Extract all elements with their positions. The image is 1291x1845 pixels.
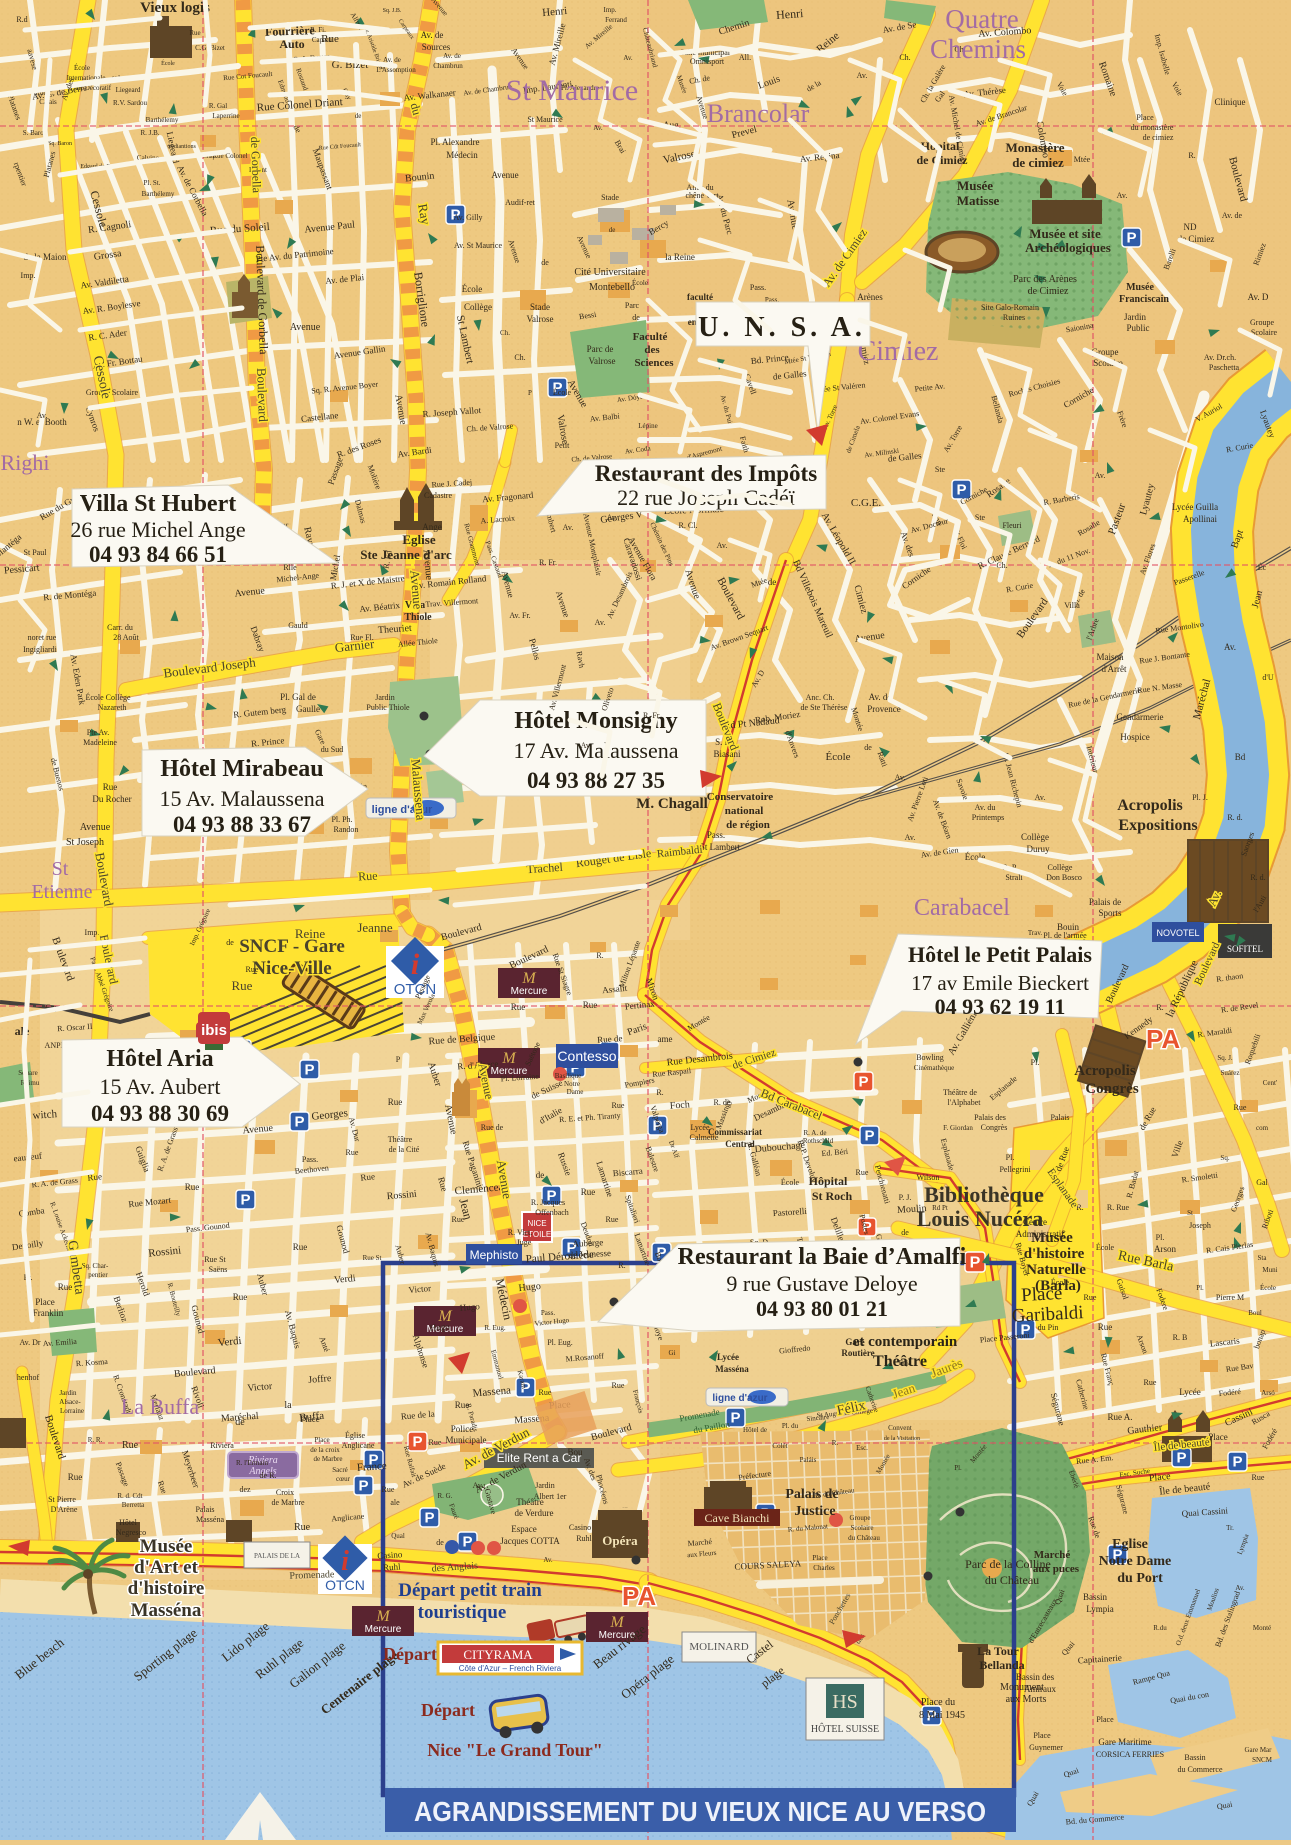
svg-text:Hôtel le Petit Palais: Hôtel le Petit Palais xyxy=(908,942,1092,967)
svg-text:Hôtel Aria: Hôtel Aria xyxy=(106,1046,213,1072)
svg-text:École: École xyxy=(825,751,850,763)
svg-text:Archéologiques: Archéologiques xyxy=(1025,240,1111,255)
svg-text:Cent': Cent' xyxy=(1263,1079,1277,1087)
svg-text:Anc. Ch.: Anc. Ch. xyxy=(806,693,835,702)
svg-text:Pass.: Pass. xyxy=(541,1309,555,1317)
svg-text:Amiraux: Amiraux xyxy=(1024,1684,1056,1694)
svg-text:P: P xyxy=(294,1114,304,1131)
svg-text:Valrose: Valrose xyxy=(589,356,616,366)
svg-text:Pte Av.: Pte Av. xyxy=(87,728,109,737)
svg-text:du Château: du Château xyxy=(848,1534,880,1542)
svg-text:Pl. J.: Pl. J. xyxy=(1192,793,1208,802)
svg-text:MOLINARD: MOLINARD xyxy=(689,1641,748,1653)
svg-text:École: École xyxy=(553,387,572,397)
svg-text:Rue: Rue xyxy=(429,1438,442,1447)
svg-text:Liegeard: Liegeard xyxy=(116,86,141,94)
svg-text:d'histoire: d'histoire xyxy=(128,1578,205,1599)
svg-text:Petit: Petit xyxy=(555,441,570,450)
svg-text:Jacques COTTA: Jacques COTTA xyxy=(500,1536,560,1546)
svg-text:touristique: touristique xyxy=(418,1602,507,1623)
svg-text:de: de xyxy=(768,577,777,587)
svg-text:NOVOTEL: NOVOTEL xyxy=(1156,928,1199,938)
svg-text:Rue A.: Rue A. xyxy=(1107,1412,1132,1422)
svg-text:École: École xyxy=(161,59,175,67)
svg-text:ame: ame xyxy=(658,1034,673,1044)
svg-text:R. Fr.: R. Fr. xyxy=(643,711,661,720)
svg-text:Nice-Ville: Nice-Ville xyxy=(252,958,331,979)
svg-text:Palais des: Palais des xyxy=(974,1113,1006,1122)
svg-text:Esc.: Esc. xyxy=(856,1444,868,1452)
svg-text:Louis Nucéra: Louis Nucéra xyxy=(917,1206,1044,1231)
svg-text:Expositions: Expositions xyxy=(1118,817,1197,834)
svg-text:Cave Bianchi: Cave Bianchi xyxy=(705,1511,771,1525)
svg-text:Verdi: Verdi xyxy=(217,1335,242,1349)
svg-text:Rue: Rue xyxy=(293,1242,308,1252)
svg-text:Pl. Gal de: Pl. Gal de xyxy=(280,692,316,702)
svg-text:15 Av. Malaussena: 15 Av. Malaussena xyxy=(160,786,325,811)
svg-text:Lympia: Lympia xyxy=(1086,1604,1114,1614)
svg-text:Jardin: Jardin xyxy=(535,1481,555,1490)
svg-text:cœur: cœur xyxy=(336,1475,351,1483)
svg-text:Pl. du: Pl. du xyxy=(782,1422,799,1430)
svg-text:HS: HS xyxy=(832,1691,858,1713)
svg-text:R. J.B.: R. J.B. xyxy=(140,129,159,137)
svg-text:Muni: Muni xyxy=(1262,1266,1277,1274)
svg-text:SOFITEL: SOFITEL xyxy=(1227,944,1263,954)
svg-text:R. Cl.: R. Cl. xyxy=(679,521,698,530)
svg-text:Carabacel: Carabacel xyxy=(914,895,1010,921)
svg-text:du Port: du Port xyxy=(1117,1571,1163,1586)
svg-text:Sources: Sources xyxy=(422,42,451,52)
svg-text:Cinémathèque: Cinémathèque xyxy=(914,1064,954,1072)
svg-text:St Lambert: St Lambert xyxy=(700,842,741,852)
svg-text:CORSICA FERRIES: CORSICA FERRIES xyxy=(1096,1750,1164,1759)
svg-text:NICE: NICE xyxy=(527,1219,546,1228)
svg-text:Offenbach: Offenbach xyxy=(535,1208,569,1217)
svg-text:Mercure: Mercure xyxy=(511,986,548,997)
svg-text:Faculté: Faculté xyxy=(633,331,668,343)
svg-text:Nice "Le Grand Tour": Nice "Le Grand Tour" xyxy=(427,1740,603,1760)
svg-text:P: P xyxy=(358,1478,368,1495)
svg-text:CITYRAMA: CITYRAMA xyxy=(463,1647,533,1662)
svg-text:U. N. S. A.: U. N. S. A. xyxy=(698,312,866,343)
svg-text:Sports: Sports xyxy=(1098,908,1122,918)
svg-text:R. Vict.: R. Vict. xyxy=(508,1228,532,1237)
svg-text:Rue: Rue xyxy=(189,29,200,37)
svg-text:Place: Place xyxy=(1096,1715,1114,1724)
svg-text:Place: Place xyxy=(812,1554,827,1562)
svg-text:Boul: Boul xyxy=(1248,1309,1262,1317)
svg-text:Rue: Rue xyxy=(581,1187,596,1197)
svg-text:Guynemer: Guynemer xyxy=(1029,1743,1063,1752)
svg-text:Collège: Collège xyxy=(1021,832,1049,842)
svg-text:Notre: Notre xyxy=(564,1080,580,1088)
svg-text:28 Août: 28 Août xyxy=(113,633,139,642)
svg-text:Av. de: Av. de xyxy=(1222,211,1243,220)
svg-text:M: M xyxy=(375,1608,391,1625)
svg-text:Lépine: Lépine xyxy=(638,422,657,430)
svg-text:Ruines: Ruines xyxy=(1003,313,1025,322)
svg-text:École: École xyxy=(632,279,648,287)
svg-text:Départ: Départ xyxy=(421,1700,475,1720)
svg-text:R.d: R.d xyxy=(16,15,27,24)
svg-text:04 93 88 30 69: 04 93 88 30 69 xyxy=(91,1101,229,1126)
svg-text:Etienne: Etienne xyxy=(31,881,92,903)
svg-text:R. Eug.: R. Eug. xyxy=(484,1324,505,1332)
svg-text:Justice: Justice xyxy=(794,1504,835,1519)
svg-text:P: P xyxy=(730,1410,740,1427)
svg-text:École: École xyxy=(781,1177,800,1187)
svg-text:Colét: Colét xyxy=(772,1442,787,1450)
svg-text:Théâtre de: Théâtre de xyxy=(943,1088,977,1097)
svg-text:Opéra: Opéra xyxy=(602,1533,638,1548)
svg-text:Suárez: Suárez xyxy=(1220,1069,1239,1077)
svg-text:Lorraine: Lorraine xyxy=(60,1407,84,1415)
svg-text:Av.: Av. xyxy=(895,773,906,782)
svg-text:ale: ale xyxy=(390,1498,400,1507)
svg-text:Site Galo-Romain: Site Galo-Romain xyxy=(981,303,1039,312)
svg-text:Av.: Av. xyxy=(857,71,868,80)
svg-text:Franciscain: Franciscain xyxy=(1119,294,1169,305)
svg-text:de Verdure: de Verdure xyxy=(514,1508,553,1518)
svg-text:Place: Place xyxy=(1148,1471,1171,1484)
svg-text:St: St xyxy=(52,858,69,880)
svg-text:Printemps: Printemps xyxy=(972,813,1004,822)
svg-text:Rue: Rue xyxy=(233,1292,248,1302)
svg-text:Henri: Henri xyxy=(776,6,805,22)
svg-text:Capatti: Capatti xyxy=(312,36,332,44)
svg-text:SNCM: SNCM xyxy=(1252,1756,1273,1764)
svg-text:Duruy: Duruy xyxy=(1027,844,1050,854)
svg-text:P. J.: P. J. xyxy=(899,1193,912,1202)
svg-text:Casino: Casino xyxy=(377,1549,403,1561)
svg-text:R. B: R. B xyxy=(1173,1333,1188,1342)
svg-text:Musée: Musée xyxy=(140,1536,193,1557)
svg-text:witch: witch xyxy=(32,1108,58,1122)
svg-text:du Château: du Château xyxy=(985,1573,1039,1587)
svg-text:Stade: Stade xyxy=(530,302,550,312)
svg-text:Du Rocher: Du Rocher xyxy=(92,794,131,804)
svg-text:Public: Public xyxy=(1126,323,1149,333)
svg-text:Rue: Rue xyxy=(511,1002,526,1012)
svg-text:d'Arrêt: d'Arrêt xyxy=(1101,664,1127,674)
svg-text:com: com xyxy=(1256,1124,1269,1132)
svg-text:de: de xyxy=(541,258,549,267)
svg-text:17 Av. Malaussena: 17 Av. Malaussena xyxy=(514,738,679,763)
svg-text:Victor: Victor xyxy=(408,1283,431,1295)
svg-text:Rue de: Rue de xyxy=(481,1123,504,1132)
svg-text:M: M xyxy=(501,1050,517,1067)
svg-text:Rue: Rue xyxy=(612,1101,625,1110)
svg-text:R. l'Ermain: R. l'Ermain xyxy=(236,1459,268,1467)
svg-text:Don Bosco: Don Bosco xyxy=(1046,873,1082,882)
svg-text:Notre Dame: Notre Dame xyxy=(1099,1554,1171,1569)
svg-text:Hospice: Hospice xyxy=(1120,732,1150,742)
svg-text:Gare Mar: Gare Mar xyxy=(1244,1746,1272,1754)
svg-text:Pellegrini: Pellegrini xyxy=(999,1165,1031,1174)
svg-text:du Sud: du Sud xyxy=(321,745,343,754)
svg-text:Jardin: Jardin xyxy=(375,693,395,702)
svg-text:du Pin: du Pin xyxy=(1038,1323,1059,1332)
svg-text:PA: PA xyxy=(622,1581,656,1611)
svg-text:faculté: faculté xyxy=(687,292,713,302)
svg-text:Place: Place xyxy=(1136,113,1154,122)
svg-text:Pl. Ph.: Pl. Ph. xyxy=(331,815,352,824)
svg-text:Stade: Stade xyxy=(601,193,619,202)
svg-text:ibis: ibis xyxy=(201,1022,227,1039)
svg-text:Masséna: Masséna xyxy=(715,1364,749,1374)
svg-text:Rue: Rue xyxy=(68,1472,83,1482)
svg-text:Ste: Ste xyxy=(935,465,946,474)
svg-text:École: École xyxy=(1096,1242,1115,1252)
svg-text:Mtée: Mtée xyxy=(1074,155,1091,164)
svg-text:Place du: Place du xyxy=(921,1697,955,1708)
svg-text:PALAIS DE LA: PALAIS DE LA xyxy=(254,1552,300,1560)
svg-text:Pl. Eug.: Pl. Eug. xyxy=(547,1338,573,1347)
svg-text:Verdi: Verdi xyxy=(334,1273,357,1286)
svg-text:Av.: Av. xyxy=(905,833,916,842)
svg-text:R. d.: R. d. xyxy=(1227,813,1242,822)
svg-text:France: France xyxy=(356,1460,387,1474)
svg-text:La Tour: La Tour xyxy=(977,1644,1019,1658)
svg-text:Valrose: Valrose xyxy=(527,314,554,324)
svg-text:Ange: Ange xyxy=(422,522,442,532)
svg-text:Quatre: Quatre xyxy=(945,4,1018,34)
svg-text:Chemins: Chemins xyxy=(930,34,1026,64)
svg-text:de la Cité: de la Cité xyxy=(389,1145,420,1154)
svg-text:Pierre M: Pierre M xyxy=(1216,1293,1244,1302)
svg-text:Pl.: Pl. xyxy=(1156,1233,1165,1242)
svg-text:Avenue: Avenue xyxy=(491,170,518,180)
svg-text:R.: R. xyxy=(1188,151,1195,160)
svg-text:Cave Bianchi: Cave Bianchi xyxy=(622,1507,628,1509)
svg-text:D'Arène: D'Arène xyxy=(51,1505,78,1514)
svg-text:Righi: Righi xyxy=(1,450,50,475)
svg-text:Eglise: Eglise xyxy=(1112,1537,1148,1552)
svg-text:R.: R. xyxy=(618,1261,625,1270)
svg-text:Acropolis: Acropolis xyxy=(1074,1063,1136,1079)
svg-text:Municipale: Municipale xyxy=(446,1435,487,1445)
svg-text:HÔTEL SUISSE: HÔTEL SUISSE xyxy=(811,1723,879,1735)
svg-text:Auto: Auto xyxy=(279,37,304,51)
svg-text:Joffre: Joffre xyxy=(308,1373,333,1386)
svg-text:Croix: Croix xyxy=(276,1488,294,1497)
svg-text:Lycée: Lycée xyxy=(717,1352,739,1362)
svg-text:Pl. Alexandre: Pl. Alexandre xyxy=(431,137,480,147)
svg-text:de: de xyxy=(436,1538,444,1547)
svg-text:Rue: Rue xyxy=(358,869,378,884)
svg-text:Chambrun: Chambrun xyxy=(433,62,463,70)
svg-text:École: École xyxy=(1260,1284,1276,1292)
svg-text:Qual: Qual xyxy=(391,1532,405,1540)
svg-text:R.: R. xyxy=(596,951,603,960)
svg-text:Ingigliardi: Ingigliardi xyxy=(23,645,58,654)
svg-text:Sq. Char-: Sq. Char- xyxy=(82,1262,109,1270)
svg-text:Rue: Rue xyxy=(360,1171,375,1182)
svg-text:Rue: Rue xyxy=(232,978,253,993)
svg-text:i: i xyxy=(411,948,420,981)
svg-text:Foch: Foch xyxy=(669,1099,690,1111)
svg-text:Av.: Av. xyxy=(623,54,633,62)
svg-text:École: École xyxy=(74,64,90,72)
svg-text:aux Morts: aux Morts xyxy=(1006,1694,1047,1705)
svg-text:Madeleine: Madeleine xyxy=(83,738,117,747)
svg-text:Hugo: Hugo xyxy=(518,1281,541,1294)
svg-text:dez: dez xyxy=(239,1485,251,1494)
svg-text:de: de xyxy=(536,1170,545,1180)
svg-text:P: P xyxy=(304,1062,314,1079)
svg-text:Masséna: Masséna xyxy=(196,1515,224,1524)
svg-text:Barthélemy: Barthélemy xyxy=(146,116,179,124)
svg-text:Arènes: Arènes xyxy=(857,292,883,302)
svg-text:P: P xyxy=(1176,1450,1186,1467)
svg-text:Randon: Randon xyxy=(334,825,359,834)
svg-text:Av. Dr: Av. Dr xyxy=(19,1338,40,1347)
svg-text:Hôtel de: Hôtel de xyxy=(743,1426,767,1434)
svg-text:Rue: Rue xyxy=(1252,1473,1265,1482)
svg-text:Av. de: Av. de xyxy=(421,30,444,40)
svg-text:Avenue: Avenue xyxy=(80,822,111,833)
svg-text:26 rue Michel Ange: 26 rue Michel Ange xyxy=(70,517,245,542)
svg-text:15 Av. Aubert: 15 Av. Aubert xyxy=(100,1074,221,1099)
svg-text:Rue: Rue xyxy=(122,1440,139,1451)
svg-text:Imp.: Imp. xyxy=(603,6,616,14)
svg-text:Hôtel Mirabeau: Hôtel Mirabeau xyxy=(160,756,323,782)
svg-text:d'U: d'U xyxy=(1262,673,1273,682)
svg-text:Sq.: Sq. xyxy=(1220,1154,1229,1162)
svg-text:R. Rue: R. Rue xyxy=(1107,1203,1130,1212)
svg-text:Wilson: Wilson xyxy=(917,1173,940,1182)
svg-text:national: national xyxy=(725,805,764,817)
svg-text:Av. Gilly: Av. Gilly xyxy=(453,213,482,222)
svg-text:Riviera: Riviera xyxy=(210,1441,234,1450)
svg-text:P: P xyxy=(858,1074,868,1091)
svg-text:St Maurice: St Maurice xyxy=(527,115,563,124)
svg-text:Gauld: Gauld xyxy=(288,621,308,630)
svg-text:P: P xyxy=(864,1128,874,1145)
svg-text:Avenue: Avenue xyxy=(290,322,321,333)
svg-text:Casino: Casino xyxy=(569,1523,591,1532)
svg-text:pentier: pentier xyxy=(88,1271,108,1279)
svg-text:Paláis: Paláis xyxy=(800,1456,817,1464)
svg-text:St Roch: St Roch xyxy=(812,1189,853,1203)
svg-text:Barthélemy: Barthélemy xyxy=(142,190,175,198)
svg-text:Boulevard: Boulevard xyxy=(254,368,271,423)
svg-text:Av.: Av. xyxy=(1117,191,1128,200)
svg-text:Gi: Gi xyxy=(669,1349,676,1357)
svg-text:Sq. Baron: Sq. Baron xyxy=(48,141,72,147)
svg-text:Rue: Rue xyxy=(388,1097,403,1107)
svg-text:R. Jacques: R. Jacques xyxy=(531,1198,565,1207)
svg-text:Convent: Convent xyxy=(888,1424,912,1432)
svg-text:Villa St Hubert: Villa St Hubert xyxy=(80,491,236,517)
svg-text:Rlle: Rlle xyxy=(283,563,297,572)
svg-text:Sq. J.: Sq. J. xyxy=(1217,1054,1233,1062)
svg-text:de Marbre: de Marbre xyxy=(271,1498,305,1507)
svg-text:Gare Maritime: Gare Maritime xyxy=(1098,1737,1151,1747)
svg-text:St Paul: St Paul xyxy=(24,548,48,557)
svg-text:PA: PA xyxy=(1146,1024,1180,1054)
svg-text:Rue: Rue xyxy=(294,1522,311,1533)
svg-text:Rue: Rue xyxy=(185,1182,200,1192)
svg-text:Scolaire: Scolaire xyxy=(851,1524,874,1532)
svg-text:Congrès: Congrès xyxy=(1085,1081,1138,1097)
svg-text:Ste Jeanne d'arc: Ste Jeanne d'arc xyxy=(360,547,452,562)
svg-text:Pl.: Pl. xyxy=(1196,1284,1204,1292)
svg-text:04 93 84 66 51: 04 93 84 66 51 xyxy=(89,542,227,567)
svg-text:de R.: de R. xyxy=(260,1471,277,1480)
svg-text:Promenade: Promenade xyxy=(289,1569,335,1582)
svg-text:St Pierre: St Pierre xyxy=(48,1495,76,1504)
svg-text:Cadastre: Cadastre xyxy=(424,491,452,500)
svg-text:Contesso: Contesso xyxy=(557,1048,616,1064)
svg-text:R.: R. xyxy=(832,1439,839,1447)
svg-text:Juge: Juge xyxy=(517,1238,532,1247)
svg-text:04 93 88 27 35: 04 93 88 27 35 xyxy=(527,768,665,793)
svg-text:de la croix: de la croix xyxy=(310,1446,340,1454)
svg-text:Hôtel: Hôtel xyxy=(119,1518,138,1527)
svg-text:Naturelle: Naturelle xyxy=(1026,1262,1086,1278)
svg-text:de: de xyxy=(355,112,362,120)
svg-text:Éc: Éc xyxy=(1258,562,1267,572)
svg-text:de cimiez: de cimiez xyxy=(1143,133,1174,142)
svg-text:Musée: Musée xyxy=(1126,282,1154,293)
svg-text:Pass.: Pass. xyxy=(750,283,766,292)
svg-text:Montebello: Montebello xyxy=(589,282,635,293)
svg-text:Musée: Musée xyxy=(1031,1230,1073,1246)
svg-text:Église: Église xyxy=(345,1430,365,1440)
svg-text:Av.: Av. xyxy=(595,618,606,627)
svg-text:Eglise: Eglise xyxy=(402,532,435,547)
svg-text:Parc des Arènes: Parc des Arènes xyxy=(1013,274,1077,285)
svg-text:Médecin: Médecin xyxy=(446,150,478,160)
svg-text:Av.: Av. xyxy=(37,411,48,420)
svg-text:Imp.: Imp. xyxy=(21,271,36,280)
svg-text:Av.: Av. xyxy=(1095,471,1106,480)
svg-text:R.: R. xyxy=(656,1088,663,1097)
svg-text:St Joseph: St Joseph xyxy=(66,837,104,848)
svg-text:Av.: Av. xyxy=(593,124,603,132)
svg-text:Hugo: Hugo xyxy=(429,1321,450,1333)
svg-text:M: M xyxy=(521,970,537,987)
svg-text:Ch.: Ch. xyxy=(899,53,910,62)
svg-text:Place: Place xyxy=(1033,1731,1051,1740)
svg-text:P: P xyxy=(1126,230,1136,247)
svg-text:Pl. de l'armée: Pl. de l'armée xyxy=(1043,931,1087,940)
svg-text:La Buffa: La Buffa xyxy=(121,1394,200,1419)
svg-text:de région: de région xyxy=(726,819,770,831)
svg-text:Musée et site: Musée et site xyxy=(1029,226,1101,241)
svg-text:Berretta: Berretta xyxy=(122,1501,145,1509)
svg-text:Av.: Av. xyxy=(543,1556,553,1564)
svg-text:Public Thiole: Public Thiole xyxy=(366,703,410,712)
svg-text:17 av Emile Bieckert: 17 av Emile Bieckert xyxy=(911,971,1089,995)
svg-text:Musée: Musée xyxy=(957,178,993,193)
svg-text:Franklin: Franklin xyxy=(33,1308,64,1318)
svg-text:Thiole: Thiole xyxy=(404,612,432,623)
svg-text:Arsó: Arsó xyxy=(1261,1389,1275,1397)
svg-text:Bassin: Bassin xyxy=(1184,1753,1205,1762)
svg-text:R. R.: R. R. xyxy=(88,1436,103,1444)
svg-text:All.: All. xyxy=(739,53,751,62)
svg-text:Groupe: Groupe xyxy=(850,1514,871,1522)
svg-text:Av.: Av. xyxy=(563,523,574,532)
svg-text:R.du: R.du xyxy=(1153,1624,1167,1632)
svg-text:P: P xyxy=(424,1510,434,1527)
svg-text:R. Fi.: R. Fi. xyxy=(310,26,326,34)
svg-text:Rue: Rue xyxy=(1098,1322,1113,1332)
svg-text:Restaurant la Baie d’Amalfi: Restaurant la Baie d’Amalfi xyxy=(678,1244,967,1270)
